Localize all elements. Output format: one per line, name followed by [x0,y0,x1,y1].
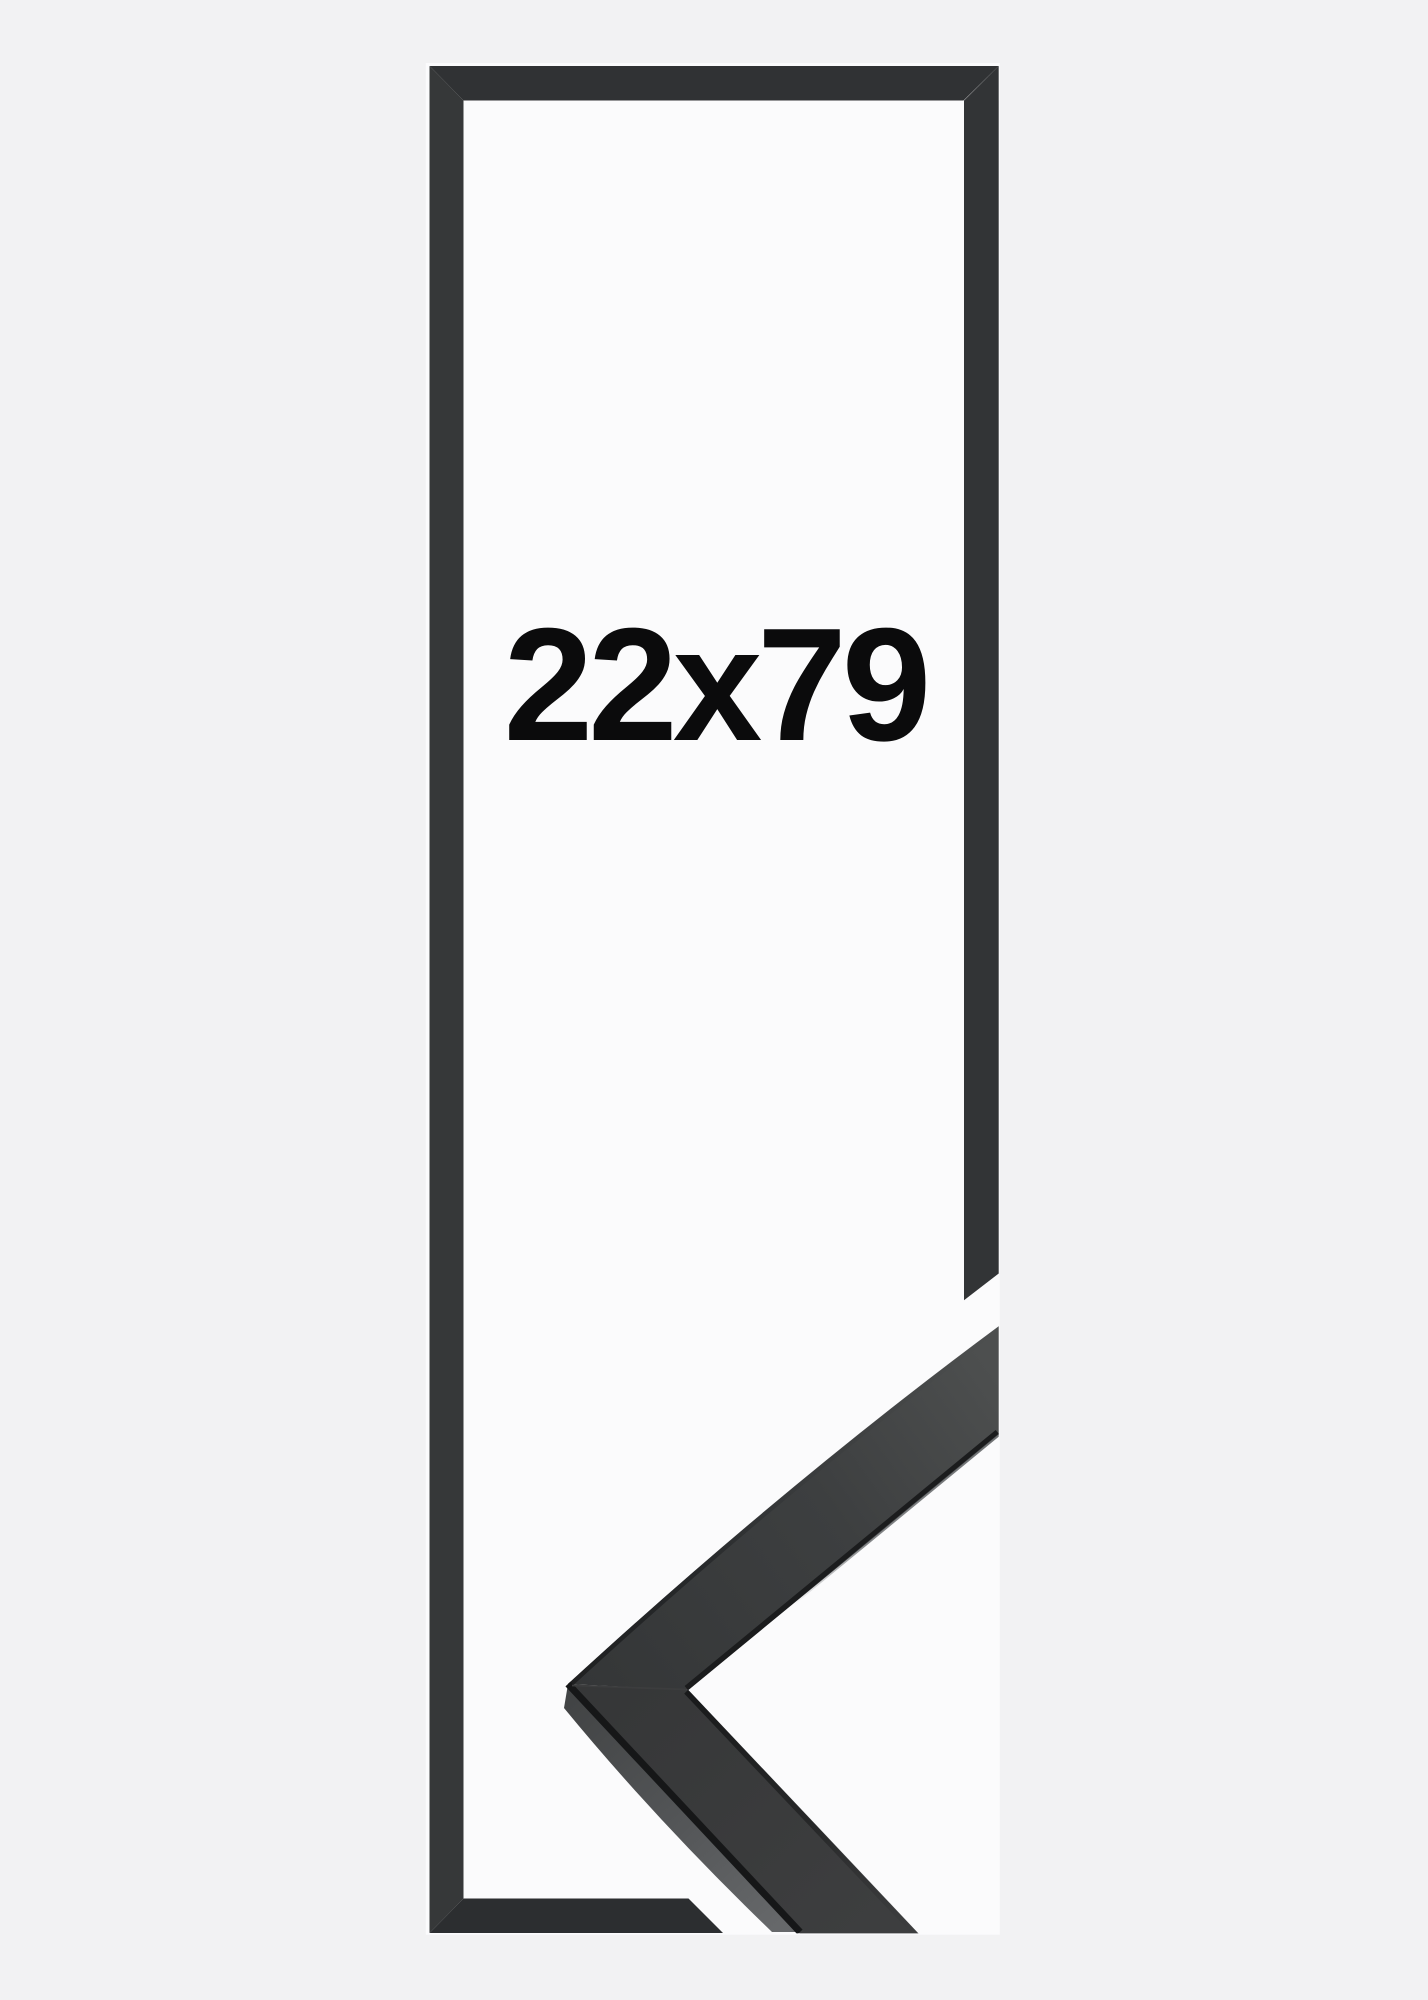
svg-text:22x79: 22x79 [504,595,927,775]
